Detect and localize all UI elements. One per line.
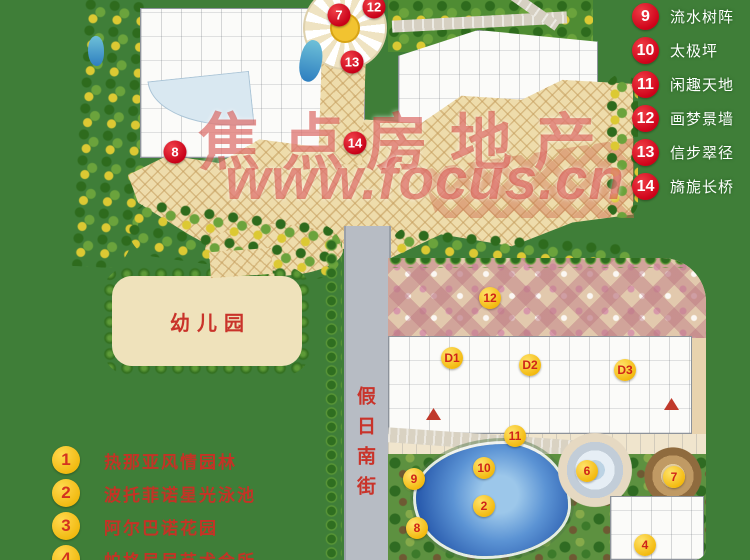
legend-number-badge: 13 [632, 139, 659, 166]
legend-number-badge: 12 [632, 105, 659, 132]
map-marker-number: 4 [642, 538, 649, 552]
map-marker: 7 [663, 466, 685, 488]
map-marker-number: D2 [522, 358, 537, 372]
map-marker: D3 [614, 359, 636, 381]
map-marker: 6 [576, 460, 598, 482]
map-marker: 8 [164, 141, 187, 164]
map-marker-number: 12 [367, 0, 381, 15]
legend-item: 2 波托菲诺星光泳池 [52, 479, 256, 507]
map-marker-number: D3 [617, 363, 632, 377]
map-marker-number: 7 [335, 8, 342, 23]
map-marker-number: 6 [584, 464, 591, 478]
map-marker: D1 [441, 347, 463, 369]
legend-item: 3 阿尔巴诺花园 [52, 512, 256, 540]
legend-item: 11 闲趣天地 [632, 71, 734, 98]
legend-label: 信步翠径 [670, 142, 734, 163]
legend-number-badge: 2 [52, 479, 80, 507]
legend-item: 10 太极坪 [632, 37, 734, 64]
legend-label: 旖旎长桥 [670, 176, 734, 197]
map-marker: 2 [473, 495, 495, 517]
map-marker-number: 10 [477, 461, 490, 475]
legend-label: 流水树阵 [670, 6, 734, 27]
legend-item: 13 信步翠径 [632, 139, 734, 166]
map-marker: 10 [473, 457, 495, 479]
legend-label: 阿尔巴诺花园 [104, 514, 218, 539]
map-marker-number: 8 [171, 145, 178, 160]
legend-number-badge: 11 [632, 71, 659, 98]
map-marker-number: D1 [444, 351, 459, 365]
legend-label: 闲趣天地 [670, 74, 734, 95]
map-marker-number: 12 [483, 291, 496, 305]
legend-number-badge: 3 [52, 512, 80, 540]
legend-number-badge: 1 [52, 446, 80, 474]
legend-item: 14 旖旎长桥 [632, 173, 734, 200]
map-marker-number: 11 [509, 429, 522, 443]
legend-bottom-left: 1 热那亚风情园林 2 波托菲诺星光泳池 3 阿尔巴诺花园 4 帕格尼尼艺术会所 [52, 446, 256, 560]
map-marker-number: 7 [671, 470, 678, 484]
legend-label: 画梦景墙 [670, 108, 734, 129]
map-marker: 11 [504, 425, 526, 447]
legend-label: 太极坪 [670, 40, 718, 61]
map-marker-number: 8 [414, 521, 421, 535]
map-marker: 12 [479, 287, 501, 309]
site-plan-canvas: 幼儿园 假日南街 7 12 13 14 8 [0, 0, 750, 560]
legend-number-badge: 9 [632, 3, 659, 30]
map-marker: 8 [406, 517, 428, 539]
legend-item: 4 帕格尼尼艺术会所 [52, 545, 256, 560]
map-marker-number: 9 [411, 472, 418, 486]
map-marker: 14 [344, 132, 367, 155]
legend-item: 9 流水树阵 [632, 3, 734, 30]
legend-number-badge: 4 [52, 545, 80, 560]
map-marker-number: 2 [481, 499, 488, 513]
legend-label: 波托菲诺星光泳池 [104, 481, 256, 506]
legend-label: 热那亚风情园林 [104, 448, 237, 473]
legend-label: 帕格尼尼艺术会所 [104, 547, 256, 560]
map-marker: 9 [403, 468, 425, 490]
legend-right: 9 流水树阵 10 太极坪 11 闲趣天地 12 画梦景墙 13 信步翠径 14… [632, 3, 734, 200]
map-marker: 4 [634, 534, 656, 556]
map-marker: 13 [341, 51, 364, 74]
map-marker: 7 [328, 4, 351, 27]
legend-number-badge: 14 [632, 173, 659, 200]
map-marker-number: 14 [348, 136, 362, 151]
map-marker: 12 [363, 0, 386, 19]
legend-item: 12 画梦景墙 [632, 105, 734, 132]
legend-number-badge: 10 [632, 37, 659, 64]
legend-item: 1 热那亚风情园林 [52, 446, 256, 474]
map-marker-number: 13 [345, 55, 359, 70]
map-marker: D2 [519, 354, 541, 376]
